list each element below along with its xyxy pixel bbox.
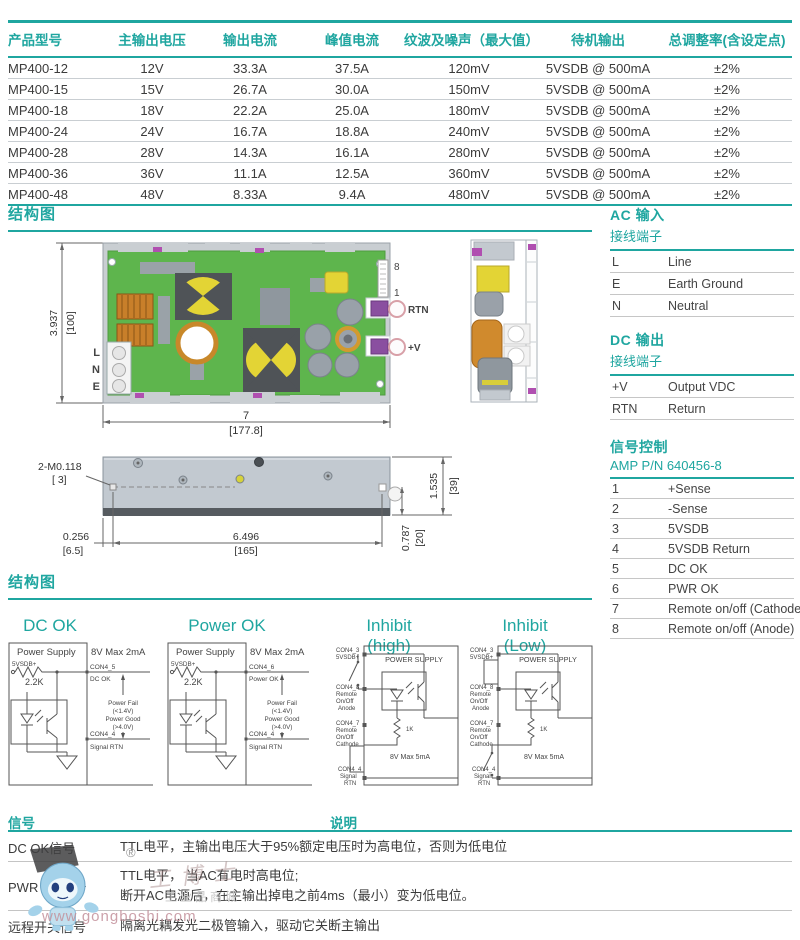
capacitor [308, 353, 332, 377]
pin8-name-3: Anode [338, 706, 356, 712]
dim-length-mm: [165] [234, 545, 257, 557]
cell: MP400-36 [8, 163, 104, 184]
cell: 28V [104, 142, 200, 163]
cell: 16.7A [200, 121, 300, 142]
pin8-name-2: On/Off [470, 699, 488, 705]
dim-width-in: 7 [243, 410, 249, 422]
box-label: POWER SUPPLY [519, 655, 577, 664]
desc-col-header: 说明 [330, 812, 357, 832]
edge-connector [153, 247, 162, 252]
edge-connector [135, 393, 144, 398]
cell: ±2% [662, 184, 792, 206]
cell: MP400-15 [8, 79, 104, 100]
pin-value: Line [668, 255, 692, 269]
pin4-name-1: Signal [340, 774, 357, 780]
pin-name: +Sense [668, 482, 711, 496]
output-toroid-core [344, 335, 353, 344]
edge-connector [253, 393, 262, 398]
signal-control-title: 信号控制 [610, 437, 794, 457]
heatsink [260, 288, 290, 325]
pin-number: 4 [612, 542, 668, 556]
pin-bot-name: Signal RTN [249, 744, 282, 751]
spec-table-header: 产品型号 主输出电压 输出电流 峰值电流 纹波及噪声（最大值） 待机输出 总调整… [8, 22, 792, 58]
optocoupler [382, 672, 426, 710]
cell: 11.1A [200, 163, 300, 184]
cell: 18V [104, 100, 200, 121]
pin-value: Return [668, 402, 706, 416]
spec-table: 产品型号 主输出电压 输出电流 峰值电流 纹波及噪声（最大值） 待机输出 总调整… [8, 20, 792, 206]
pin8-label: CON4_8 [470, 685, 494, 691]
pin-number: 8 [612, 622, 668, 636]
pin7-name-3: Cathode [470, 742, 493, 748]
signal-connector [378, 260, 388, 297]
table-row: 35VSDB [610, 519, 794, 539]
signal-control-subtitle: AMP P/N 640456-8 [610, 457, 794, 479]
table-row: 7Remote on/off (Cathode) [610, 599, 794, 619]
table-row: 45VSDB Return [610, 539, 794, 559]
resistor-label: 2.2K [184, 677, 203, 687]
table-row: EEarth Ground [610, 273, 794, 295]
optocoupler [170, 700, 226, 744]
cell: 37.5A [300, 57, 404, 79]
pin8-name-1: Remote [336, 692, 358, 698]
pin-bot-name: Signal RTN [90, 744, 123, 751]
cell: 5VSDB @ 500mA [534, 121, 662, 142]
rating-label: 8V Max 5mA [390, 754, 430, 761]
cell: ±2% [662, 100, 792, 121]
section-title-structure-2: 结构图 [8, 571, 592, 600]
cell: 24V [104, 121, 200, 142]
circuit-inhibit-high: POWER SUPPLY CON4_3 5VSDB+ CON4_8 Remote… [334, 638, 462, 795]
cell: MP400-48 [8, 184, 104, 206]
pin-name: 5VSDB [668, 522, 709, 536]
cell: MP400-18 [8, 100, 104, 121]
pin-name: -Sense [668, 502, 708, 516]
pin-number: 3 [612, 522, 668, 536]
cell: 150mV [404, 79, 534, 100]
pin8-name-1: Remote [470, 692, 492, 698]
dim-height-mm: [100] [65, 311, 77, 334]
table-row: MP400-1212V33.3A37.5A120mV5VSDB @ 500mA±… [8, 57, 792, 79]
pcb-top-view-diagram: 3.937 [100] [40, 232, 600, 447]
dim-height-in: 3.937 [48, 310, 60, 336]
dimension-height: 3.937 [100] [48, 243, 103, 403]
pin-bot-label: CON4_4 [249, 731, 275, 738]
col-current: 输出电流 [200, 22, 300, 58]
label-l: L [93, 347, 100, 359]
transformer-1 [175, 273, 232, 320]
resistor-label: 1K [540, 727, 547, 733]
cell: ±2% [662, 57, 792, 79]
pcb-board [103, 243, 405, 403]
note-good: Power Good [264, 716, 299, 723]
cell: 120mV [404, 57, 534, 79]
note-good: Power Good [105, 716, 140, 723]
cell: ±2% [662, 142, 792, 163]
table-row: 8Remote on/off (Anode) [610, 619, 794, 639]
box-label: Power Supply [176, 647, 235, 658]
source-label: 5VSDB+ [171, 661, 196, 668]
label-e: E [93, 381, 100, 393]
cell: 36V [104, 163, 200, 184]
input-terminal-block [107, 342, 131, 394]
source-label: 5VSDB+ [12, 661, 37, 668]
signal-desc-line-2: 断开AC电源后，在主输出掉电之前4ms（最小）变为低电位。 [120, 886, 792, 906]
cell: 12.5A [300, 163, 404, 184]
dim-width-mm: [177.8] [229, 425, 263, 437]
cell: 25.0A [300, 100, 404, 121]
table-row: MP400-2828V14.3A16.1A280mV5VSDB @ 500mA±… [8, 142, 792, 163]
pin4-name-2: RTN [344, 781, 356, 787]
table-row: MP400-1818V22.2A25.0A180mV5VSDB @ 500mA±… [8, 100, 792, 121]
cell: 480mV [404, 184, 534, 206]
cell: 5VSDB @ 500mA [534, 79, 662, 100]
output-terminal-rtn [366, 298, 405, 318]
pin3-name: 5VSDB+ [336, 655, 360, 661]
col-standby: 待机输出 [534, 22, 662, 58]
pin-key: RTN [612, 402, 668, 416]
dimension-width: 7 [177.8] [103, 405, 390, 437]
pin4-name-1: Signal [474, 774, 491, 780]
col-regulation: 总调整率(含设定点) [662, 22, 792, 58]
resistor-label: 1K [406, 727, 413, 733]
dim-screw: 2-M0.118 [38, 461, 82, 473]
pin-key: N [612, 299, 668, 313]
cell: 5VSDB @ 500mA [534, 163, 662, 184]
dim-offset-mm: [6.5] [63, 545, 84, 557]
pin-value: Earth Ground [668, 277, 743, 291]
chassis-side-view-diagram: 2-M0.118 [ 3] 0.256 [6.5] 6.496 [165] 1.… [30, 450, 470, 565]
cell: 12V [104, 57, 200, 79]
pin7-label: CON4_7 [470, 721, 494, 727]
dim-offset-in: 0.256 [63, 531, 89, 543]
ac-input-block: AC 输入 接线端子 LLine EEarth Ground NNeutral [610, 205, 794, 317]
ac-input-title: AC 输入 [610, 205, 794, 225]
pin3-label: CON4_3 [470, 648, 494, 654]
pin7-name-1: Remote [470, 728, 492, 734]
circuit-inhibit-low: POWER SUPPLY CON4_3 5VSDB+ CON4_8 Remote… [468, 638, 596, 795]
cell: MP400-28 [8, 142, 104, 163]
cell: 48V [104, 184, 200, 206]
pin-key: E [612, 277, 668, 291]
circuit-title-power-ok: Power OK [182, 616, 272, 636]
dim-d-mm: [20] [414, 529, 426, 547]
film-capacitor [325, 272, 348, 293]
dc-output-title: DC 输出 [610, 330, 794, 350]
chassis-side [103, 457, 402, 516]
rating-label: 8V Max 2mA [250, 647, 305, 658]
dim-h-mm: [39] [448, 477, 460, 495]
signal-desc: TTL电平， 当AC有电时高电位; 断开AC电源后，在主输出掉电之前4ms（最小… [120, 866, 792, 906]
cell: 5VSDB @ 500mA [534, 184, 662, 206]
pin-name: PWR OK [668, 582, 719, 596]
cell: ±2% [662, 163, 792, 184]
toroid-inductor [178, 324, 216, 362]
col-voltage: 主输出电压 [104, 22, 200, 58]
signal-desc-line-1: TTL电平， 当AC有电时高电位; [120, 866, 792, 886]
table-row: MP400-2424V16.7A18.8A240mV5VSDB @ 500mA±… [8, 121, 792, 142]
cell: 240mV [404, 121, 534, 142]
pin-key: L [612, 255, 668, 269]
cell: 16.1A [300, 142, 404, 163]
cell: 5VSDB @ 500mA [534, 100, 662, 121]
dimension-right: 1.535 [39] 0.787 [20] [392, 457, 460, 551]
note-fail-v: (<1.4V) [113, 708, 134, 715]
datasheet-page: 产品型号 主输出电压 输出电流 峰值电流 纹波及噪声（最大值） 待机输出 总调整… [0, 0, 800, 940]
signal-desc: 隔离光耦发光二极管输入，驱动它关断主输出 [120, 916, 792, 936]
rating-label: 8V Max 5mA [524, 754, 564, 761]
cell: 180mV [404, 100, 534, 121]
table-row: NNeutral [610, 295, 794, 317]
pin7-name-2: On/Off [336, 735, 354, 741]
pin-number: 7 [612, 602, 668, 616]
table-row: RTNReturn [610, 398, 794, 420]
circuit-dc-ok: Power Supply 8V Max 2mA 5VSDB+ 2.2K CON4… [5, 638, 155, 795]
pin-top-label: CON4_6 [249, 664, 275, 671]
pcb-profile-view [471, 240, 537, 402]
note-fail: Power Fail [108, 700, 138, 707]
pin8-name-2: On/Off [336, 699, 354, 705]
cell: 18.8A [300, 121, 404, 142]
pin-top-label: CON4_5 [90, 664, 116, 671]
pin-top-name: Power OK [249, 676, 279, 683]
table-row: PWR OK信号 TTL电平， 当AC有电时高电位; 断开AC电源后，在主输出掉… [8, 862, 792, 911]
label-pin1: 1 [394, 288, 400, 299]
pin7-name-3: Cathode [336, 742, 359, 748]
capacitor [305, 324, 331, 350]
table-row: 1+Sense [610, 479, 794, 499]
pin-top-name: DC OK [90, 676, 111, 683]
dim-length-in: 6.496 [233, 531, 259, 543]
label-rtn: RTN [408, 305, 429, 316]
cell: 33.3A [200, 57, 300, 79]
optocoupler [11, 700, 67, 744]
col-peak: 峰值电流 [300, 22, 404, 58]
pin7-name-2: On/Off [470, 735, 488, 741]
pin-key: +V [612, 380, 668, 394]
pin-number: 1 [612, 482, 668, 496]
signal-name: DC OK信号 [8, 838, 120, 857]
pin-name: Remote on/off (Anode) [668, 622, 794, 636]
dc-output-subtitle: 接线端子 [610, 350, 794, 376]
cell: ±2% [662, 121, 792, 142]
pad-box [484, 660, 498, 684]
cell: 9.4A [300, 184, 404, 206]
rating-label: 8V Max 2mA [91, 647, 146, 658]
pin-number: 2 [612, 502, 668, 516]
optocoupler [516, 672, 560, 710]
dim-screw-mm: [ 3] [52, 474, 67, 486]
box-label: Power Supply [17, 647, 76, 658]
note-good-v: (>4.0V) [272, 724, 293, 731]
cell: 14.3A [200, 142, 300, 163]
cell: 360mV [404, 163, 534, 184]
table-row: 2-Sense [610, 499, 794, 519]
section-title-structure-1: 结构图 [8, 203, 592, 232]
table-row: 6PWR OK [610, 579, 794, 599]
dim-h-in: 1.535 [428, 473, 440, 499]
table-row: LLine [610, 251, 794, 273]
table-row: 5DC OK [610, 559, 794, 579]
capacitor [335, 353, 359, 377]
cell: 280mV [404, 142, 534, 163]
pin-name: 5VSDB Return [668, 542, 750, 556]
dc-output-block: DC 输出 接线端子 +VOutput VDC RTNReturn [610, 330, 794, 420]
pin-name: Remote on/off (Cathode) [668, 602, 800, 616]
cell: 5VSDB @ 500mA [534, 142, 662, 163]
pin-value: Neutral [668, 299, 708, 313]
output-terminal-v [366, 336, 405, 356]
edge-connector [255, 248, 264, 253]
label-plus-v: +V [408, 343, 421, 354]
dimension-screw: 2-M0.118 [ 3] [38, 461, 110, 486]
cell: 26.7A [200, 79, 300, 100]
ac-input-subtitle: 接线端子 [610, 225, 794, 251]
pin4-name-2: RTN [478, 781, 490, 787]
pin-value: Output VDC [668, 380, 735, 394]
dim-d-in: 0.787 [400, 525, 412, 551]
note-fail-v: (<1.4V) [272, 708, 293, 715]
cell: 15V [104, 79, 200, 100]
table-row: MP400-1515V26.7A30.0A150mV5VSDB @ 500mA±… [8, 79, 792, 100]
signal-desc: TTL电平，主输出电压大于95%额定电压时为高电位，否则为低电位 [120, 837, 792, 857]
cell: 30.0A [300, 79, 404, 100]
note-good-v: (>4.0V) [113, 724, 134, 731]
pin7-name-1: Remote [336, 728, 358, 734]
pin3-label: CON4_3 [336, 648, 360, 654]
cell: 8.33A [200, 184, 300, 206]
cell: 5VSDB @ 500mA [534, 57, 662, 79]
signal-table: DC OK信号 TTL电平，主输出电压大于95%额定电压时为高电位，否则为低电位… [8, 832, 792, 940]
pin-bot-label: CON4_4 [90, 731, 116, 738]
ground-symbol [216, 756, 236, 769]
pin-number: 6 [612, 582, 668, 596]
cell: 22.2A [200, 100, 300, 121]
pin-number: 5 [612, 562, 668, 576]
signal-col-header: 信号 [8, 812, 35, 832]
cell: MP400-24 [8, 121, 104, 142]
label-pin8: 8 [394, 262, 400, 273]
circuit-title-dc-ok: DC OK [5, 616, 95, 636]
pin8-label: CON4_8 [336, 685, 360, 691]
table-row: DC OK信号 TTL电平，主输出电压大于95%额定电压时为高电位，否则为低电位 [8, 832, 792, 862]
signal-control-block: 信号控制 AMP P/N 640456-8 1+Sense 2-Sense 35… [610, 437, 794, 639]
col-model: 产品型号 [8, 22, 104, 58]
cell: MP400-12 [8, 57, 104, 79]
pin-name: DC OK [668, 562, 708, 576]
table-row: 远程开关信号 隔离光耦发光二极管输入，驱动它关断主输出 [8, 911, 792, 940]
circuit-power-ok: Power Supply 8V Max 2mA 5VSDB+ 2.2K CON4… [164, 638, 314, 795]
table-row: MP400-4848V8.33A9.4A480mV5VSDB @ 500mA±2… [8, 184, 792, 206]
signal-name: 远程开关信号 [8, 917, 120, 936]
resistor-label: 2.2K [25, 677, 44, 687]
ground-symbol [57, 756, 77, 769]
pin8-name-3: Anode [472, 706, 490, 712]
transformer-2 [243, 328, 300, 392]
cell: ±2% [662, 79, 792, 100]
terminal-bump [388, 487, 402, 501]
box-label: POWER SUPPLY [385, 655, 443, 664]
capacitor [337, 299, 363, 325]
pin7-label: CON4_7 [336, 721, 360, 727]
col-ripple: 纹波及噪声（最大值） [404, 22, 534, 58]
table-row: +VOutput VDC [610, 376, 794, 398]
table-row: MP400-3636V11.1A12.5A360mV5VSDB @ 500mA±… [8, 163, 792, 184]
label-n: N [92, 364, 100, 376]
signal-name: PWR OK信号 [8, 877, 120, 896]
note-fail: Power Fail [267, 700, 297, 707]
